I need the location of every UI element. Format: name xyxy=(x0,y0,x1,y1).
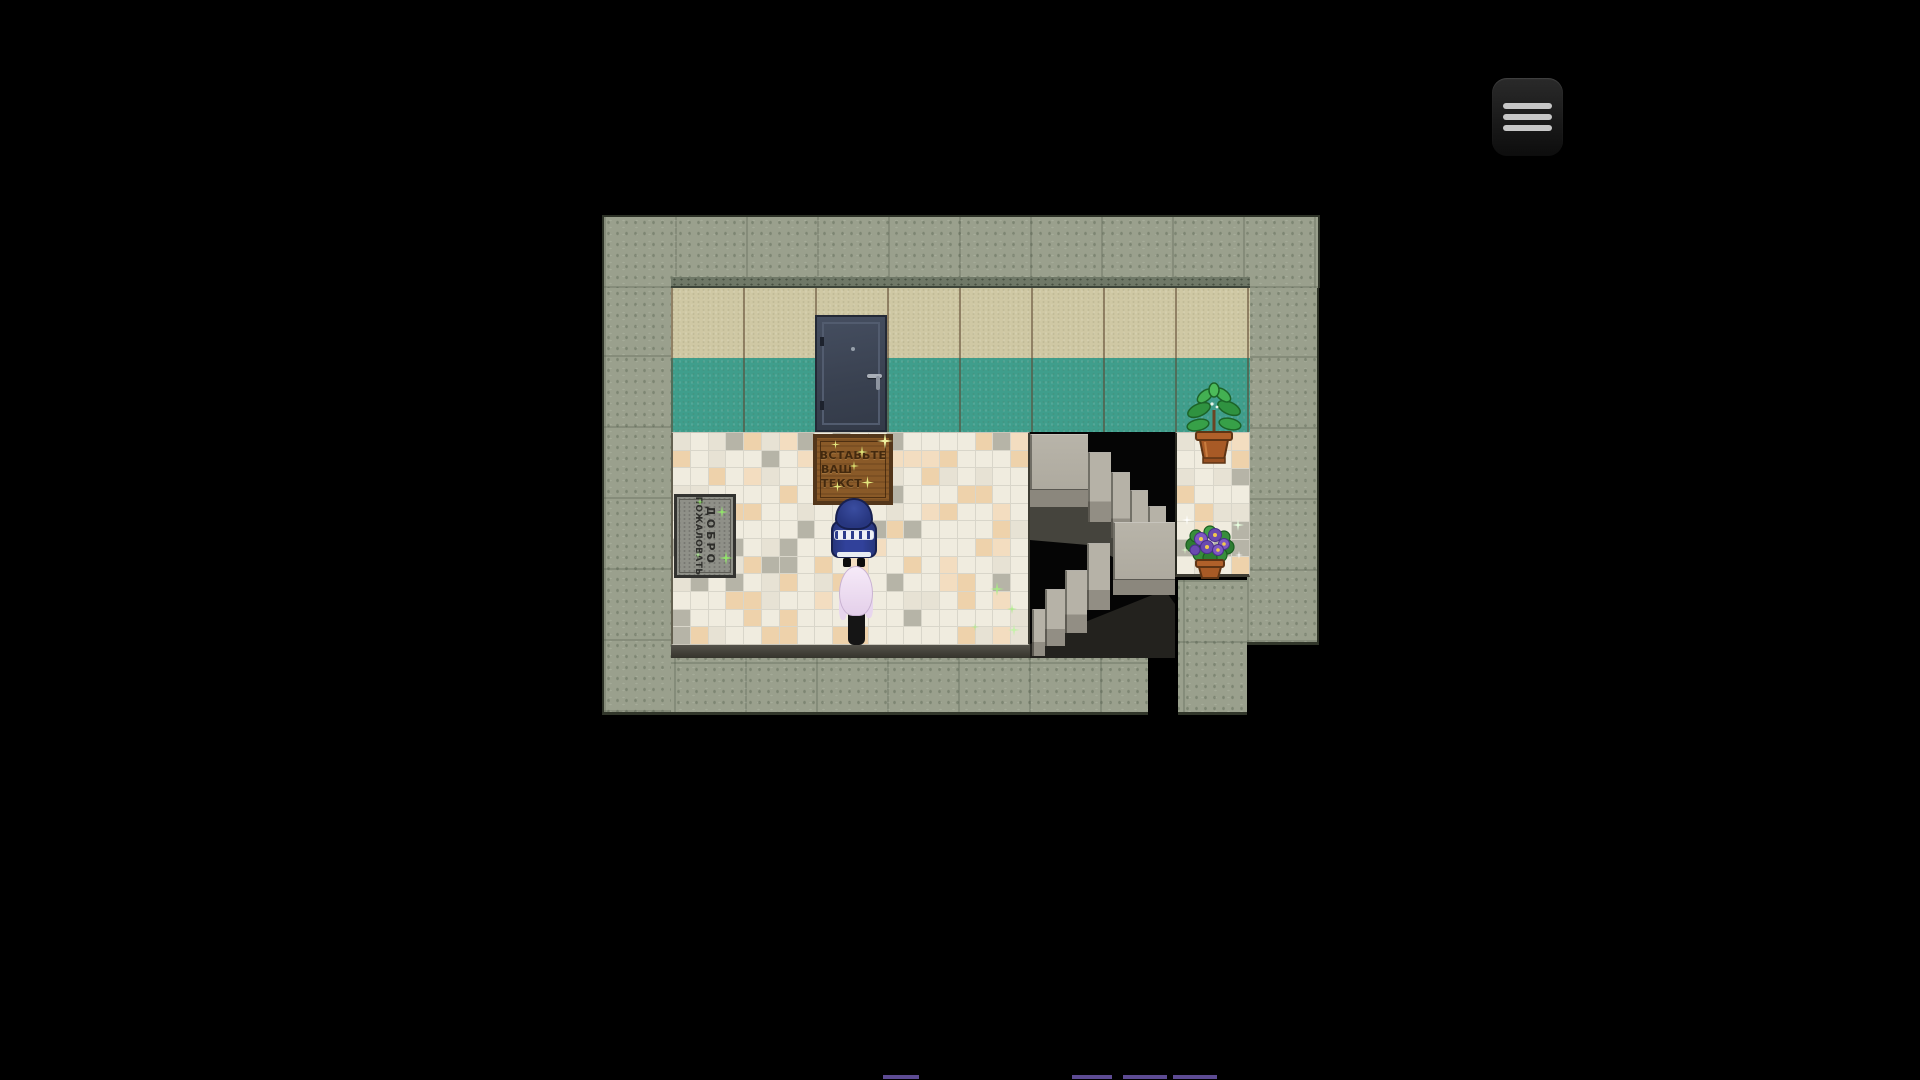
floor-tile xyxy=(976,451,993,468)
floor-tile xyxy=(691,451,708,468)
floor-tile xyxy=(958,433,975,450)
floor-tile xyxy=(904,610,921,627)
floor-tile xyxy=(993,486,1010,503)
floor-tile xyxy=(940,592,957,609)
stair-step xyxy=(1065,570,1087,633)
floor-tile xyxy=(940,539,957,556)
floor-tile xyxy=(976,610,993,627)
floor-tile xyxy=(744,521,761,538)
floor-tile xyxy=(958,486,975,503)
floor-tile xyxy=(993,627,1010,644)
npc-character-blue-coat[interactable] xyxy=(831,498,877,567)
floor-tile xyxy=(1011,539,1028,556)
floor-tile xyxy=(940,557,957,574)
floor-tile xyxy=(922,468,939,485)
floor-tile xyxy=(976,557,993,574)
hamburger-icon xyxy=(1503,114,1552,120)
floor-tile xyxy=(673,433,690,450)
floor-tile xyxy=(1011,504,1028,521)
floor-tile xyxy=(993,610,1010,627)
floor-tile xyxy=(887,574,904,591)
floor-tile xyxy=(904,574,921,591)
character-coat-pattern xyxy=(834,530,874,540)
floor-edge-shadow xyxy=(671,645,1030,658)
potted-plant-icon xyxy=(1186,380,1242,465)
character-hair xyxy=(839,566,873,616)
floor-tile xyxy=(976,592,993,609)
floor-tile xyxy=(1214,469,1231,486)
door-mat-text-line2: ВАШ ТЕКСТ xyxy=(821,463,885,491)
floor-tile xyxy=(1011,486,1028,503)
floor-tile xyxy=(922,504,939,521)
floor-tile xyxy=(993,592,1010,609)
character-hood xyxy=(835,498,873,530)
floor-tile xyxy=(780,504,797,521)
floor-tile xyxy=(887,610,904,627)
floor-tile xyxy=(798,521,815,538)
floor-tile xyxy=(726,468,743,485)
floor-tile xyxy=(744,557,761,574)
floor-tile xyxy=(762,574,779,591)
floor-tile xyxy=(780,486,797,503)
floor-tile xyxy=(904,592,921,609)
floor-tile xyxy=(904,486,921,503)
floor-tile xyxy=(958,592,975,609)
door-lock-icon xyxy=(876,376,880,390)
floor-tile xyxy=(1011,451,1028,468)
bottom-ui-strip xyxy=(883,1075,919,1079)
floor-tile xyxy=(976,521,993,538)
player-character-pink-hair[interactable] xyxy=(839,566,873,645)
floor-tile xyxy=(691,433,708,450)
floor-tile xyxy=(976,574,993,591)
floor-tile xyxy=(815,610,832,627)
violet-flower-pot-icon xyxy=(1180,514,1240,580)
floor-tile xyxy=(958,627,975,644)
floor-tile xyxy=(798,592,815,609)
stair-landing-face xyxy=(1113,579,1175,595)
floor-tile xyxy=(1011,468,1028,485)
stairwell-pit xyxy=(1030,432,1175,658)
floor-tile xyxy=(673,592,690,609)
floor-tile xyxy=(1011,574,1028,591)
floor-tile xyxy=(887,557,904,574)
floor-tile xyxy=(993,521,1010,538)
floor-tile xyxy=(780,451,797,468)
floor-tile xyxy=(958,504,975,521)
floor-tile xyxy=(940,486,957,503)
door-mat[interactable]: ВСТАВЬТЕ ВАШ ТЕКСТ xyxy=(813,434,893,505)
floor-tile xyxy=(922,574,939,591)
welcome-mat-text-line2: ПОЖАЛОВАТЬ xyxy=(693,496,705,575)
stone-ground-bottom xyxy=(671,658,1148,715)
floor-tile xyxy=(958,574,975,591)
stair-landing xyxy=(1113,522,1175,579)
floor-tile xyxy=(940,610,957,627)
floor-tile xyxy=(744,468,761,485)
floor-tile xyxy=(726,451,743,468)
floor-tile xyxy=(815,504,832,521)
floor-tile xyxy=(798,486,815,503)
floor-tile xyxy=(762,451,779,468)
door-hinge-icon xyxy=(820,401,824,410)
stair-step xyxy=(1045,589,1065,646)
floor-tile xyxy=(1232,486,1249,503)
floor-tile xyxy=(673,610,690,627)
floor-tile xyxy=(887,521,904,538)
floor-tile xyxy=(762,521,779,538)
floor-tile xyxy=(1232,469,1249,486)
floor-tile xyxy=(976,468,993,485)
floor-tile xyxy=(922,451,939,468)
door-mat-text-line1: ВСТАВЬТЕ xyxy=(820,449,887,463)
floor-tile xyxy=(976,433,993,450)
floor-tile xyxy=(744,504,761,521)
floor-tile xyxy=(762,592,779,609)
wall-top-trim xyxy=(671,277,1250,288)
bottom-ui-strip xyxy=(1123,1075,1167,1079)
floor-tile xyxy=(976,504,993,521)
floor-tile xyxy=(673,627,690,644)
hamburger-icon xyxy=(1503,125,1552,131)
stone-ground-left xyxy=(602,288,671,715)
floor-tile xyxy=(922,521,939,538)
floor-tile xyxy=(976,627,993,644)
menu-button[interactable] xyxy=(1492,78,1563,156)
stair-top-landing-face xyxy=(1030,489,1088,507)
floor-tile xyxy=(726,627,743,644)
floor-tile xyxy=(940,574,957,591)
floor-tile xyxy=(922,433,939,450)
stair-step xyxy=(1088,452,1111,522)
floor-tile xyxy=(762,468,779,485)
floor-tile xyxy=(1177,469,1194,486)
floor-tile xyxy=(798,468,815,485)
stone-ground-bottom-right xyxy=(1178,580,1247,715)
floor-tile xyxy=(744,539,761,556)
floor-tile xyxy=(922,627,939,644)
floor-tile xyxy=(780,610,797,627)
welcome-mat-text-line1: ДОБРО xyxy=(705,506,718,566)
floor-tile xyxy=(976,486,993,503)
floor-tile xyxy=(958,521,975,538)
floor-tile xyxy=(958,468,975,485)
floor-tile xyxy=(691,468,708,485)
floor-tile xyxy=(780,521,797,538)
floor-tile xyxy=(1177,486,1194,503)
floor-tile xyxy=(726,433,743,450)
floor-tile xyxy=(780,592,797,609)
floor-tile xyxy=(904,504,921,521)
door-peephole-icon xyxy=(851,347,855,351)
floor-tile xyxy=(958,451,975,468)
floor-tile xyxy=(993,557,1010,574)
stair-step xyxy=(1032,609,1045,656)
floor-tile xyxy=(709,627,726,644)
floor-tile xyxy=(762,557,779,574)
floor-tile xyxy=(798,574,815,591)
floor-tile xyxy=(940,433,957,450)
floor-tile xyxy=(922,557,939,574)
floor-tile xyxy=(726,592,743,609)
floor-tile xyxy=(762,627,779,644)
floor-tile xyxy=(904,468,921,485)
floor-tile xyxy=(922,539,939,556)
floor-tile xyxy=(709,592,726,609)
floor-tile xyxy=(744,486,761,503)
floor-tile xyxy=(887,539,904,556)
floor-tile xyxy=(940,627,957,644)
floor-tile xyxy=(798,627,815,644)
floor-tile xyxy=(815,574,832,591)
floor-tile xyxy=(1011,610,1028,627)
floor-tile xyxy=(673,468,690,485)
floor-tile xyxy=(815,557,832,574)
floor-tile xyxy=(780,433,797,450)
floor-tile xyxy=(904,433,921,450)
floor-tile xyxy=(780,557,797,574)
floor-tile xyxy=(1011,433,1028,450)
floor-tile xyxy=(1195,469,1212,486)
floor-tile xyxy=(922,610,939,627)
room-wall xyxy=(671,288,1250,432)
floor-tile xyxy=(940,468,957,485)
floor-tile xyxy=(815,592,832,609)
floor-tile xyxy=(993,539,1010,556)
door-hinge-icon xyxy=(820,337,824,346)
floor-tile xyxy=(744,451,761,468)
floor-tile xyxy=(744,592,761,609)
hamburger-icon xyxy=(1503,103,1552,109)
floor-tile xyxy=(922,592,939,609)
floor-tile xyxy=(1011,592,1028,609)
floor-tile xyxy=(940,504,957,521)
floor-tile xyxy=(762,610,779,627)
floor-tile xyxy=(709,451,726,468)
floor-tile xyxy=(958,557,975,574)
floor-tile xyxy=(709,468,726,485)
floor-tile xyxy=(904,627,921,644)
floor-tile xyxy=(744,627,761,644)
floor-tile xyxy=(762,539,779,556)
floor-tile xyxy=(922,486,939,503)
floor-tile xyxy=(798,557,815,574)
floor-tile xyxy=(691,627,708,644)
floor-tile xyxy=(726,610,743,627)
floor-tile xyxy=(904,557,921,574)
floor-tile xyxy=(815,521,832,538)
floor-tile xyxy=(993,451,1010,468)
floor-tile xyxy=(904,539,921,556)
floor-tile xyxy=(887,627,904,644)
floor-tile xyxy=(798,610,815,627)
character-coat-hem xyxy=(837,552,871,557)
floor-tile xyxy=(1195,486,1212,503)
floor-tile xyxy=(798,539,815,556)
floor-tile xyxy=(1214,486,1231,503)
floor-tile xyxy=(691,610,708,627)
floor-tile xyxy=(780,627,797,644)
floor-tile xyxy=(762,504,779,521)
floor-tile xyxy=(904,451,921,468)
floor-tile xyxy=(744,610,761,627)
bottom-ui-strip xyxy=(1072,1075,1112,1079)
floor-tile xyxy=(815,539,832,556)
floor-tile xyxy=(744,574,761,591)
floor-tile xyxy=(673,451,690,468)
floor-tile xyxy=(780,468,797,485)
stone-ground-right xyxy=(1247,288,1319,645)
floor-tile xyxy=(958,610,975,627)
bottom-ui-strip xyxy=(1173,1075,1217,1079)
floor-tile xyxy=(798,504,815,521)
stairwell-gap xyxy=(1148,658,1178,715)
floor-tile xyxy=(993,468,1010,485)
floor-tile xyxy=(1011,521,1028,538)
floor-tile xyxy=(691,592,708,609)
floor-tile xyxy=(780,574,797,591)
floor-tile xyxy=(958,539,975,556)
floor-tile xyxy=(1011,557,1028,574)
floor-tile xyxy=(744,433,761,450)
floor-tile xyxy=(887,504,904,521)
floor-tile xyxy=(780,539,797,556)
floor-tile xyxy=(798,433,815,450)
floor-tile xyxy=(940,521,957,538)
welcome-mat[interactable]: ДОБРО ПОЖАЛОВАТЬ xyxy=(674,494,736,578)
floor-tile xyxy=(940,451,957,468)
floor-tile xyxy=(762,486,779,503)
floor-tile xyxy=(976,539,993,556)
floor-tile xyxy=(993,504,1010,521)
game-screen[interactable]: ВСТАВЬТЕ ВАШ ТЕКСТ ДОБРО ПОЖАЛОВАТЬ xyxy=(0,0,1920,1080)
floor-tile xyxy=(762,433,779,450)
floor-tile xyxy=(709,433,726,450)
floor-tile xyxy=(798,451,815,468)
floor-tile xyxy=(887,592,904,609)
stair-step xyxy=(1087,543,1110,610)
floor-tile xyxy=(709,610,726,627)
stair-top-landing xyxy=(1030,434,1088,489)
floor-tile xyxy=(904,521,921,538)
floor-tile xyxy=(815,627,832,644)
floor-tile xyxy=(993,433,1010,450)
apartment-door[interactable] xyxy=(815,315,887,432)
